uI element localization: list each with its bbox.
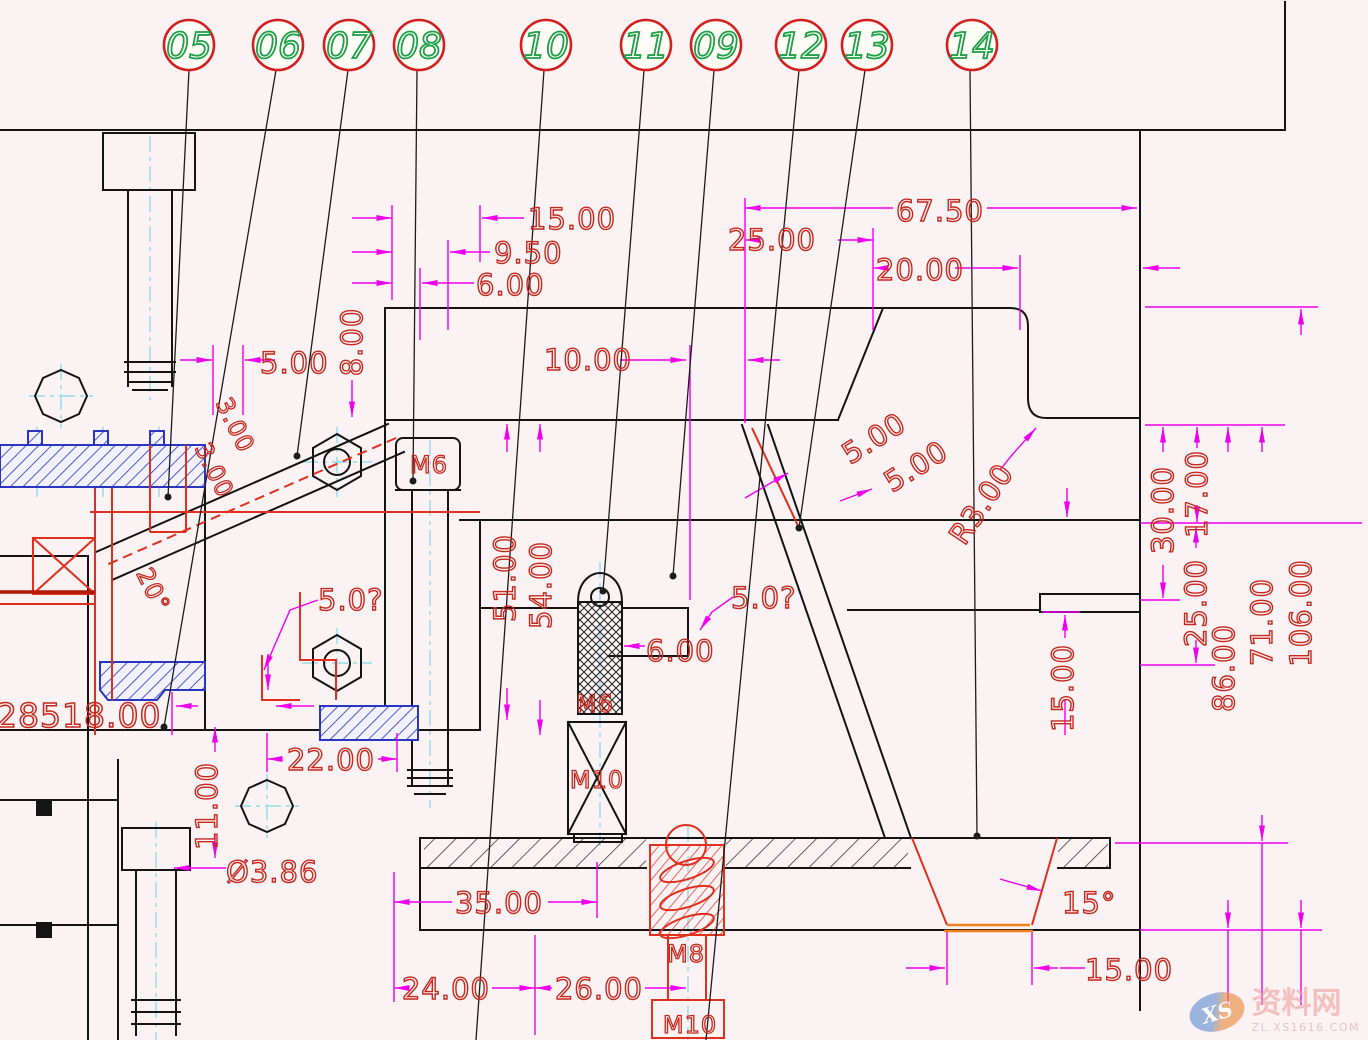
balloon-callouts: 05 06 07 08 10 11 09 12 13 14 <box>164 20 997 70</box>
balloon-08: 08 <box>394 20 444 70</box>
angled-guide-pin <box>742 425 911 838</box>
label-m6-pin: M6 <box>576 690 614 718</box>
dim-8-vertical: 8.00 <box>335 308 369 377</box>
dim-15-top: 15.00 <box>528 202 616 236</box>
dim-30-right: 30.00 <box>1146 466 1180 554</box>
dim-dia-3-86: Ø3.86 <box>226 855 318 889</box>
dim-5q-right: 5.0? <box>731 581 797 615</box>
dim-67-5: 67.50 <box>896 194 984 228</box>
balloon-14-label: 14 <box>949 26 995 67</box>
balloon-11: 11 <box>621 20 671 70</box>
dim-35: 35.00 <box>455 886 543 920</box>
dim-6-top: 6.00 <box>476 268 545 302</box>
balloon-05-label: 05 <box>166 26 212 67</box>
label-m10-screw: M10 <box>663 1011 717 1039</box>
dim-22: 22.00 <box>287 743 375 777</box>
dim-20-top: 20.00 <box>876 253 964 287</box>
dim-r3: R3.00 <box>942 457 1020 550</box>
label-m8-screw: M8 <box>667 940 705 968</box>
balloon-11-label: 11 <box>623 26 669 67</box>
watermark-xs-logo-icon: XS <box>1184 986 1248 1038</box>
watermark-logo-text: XS <box>1198 995 1235 1028</box>
balloon-08-label: 08 <box>396 26 442 67</box>
dim-17-right: 17.00 <box>1180 450 1214 538</box>
dim-11: 11.00 <box>190 762 224 850</box>
dim-6-mid: 6.00 <box>646 634 715 668</box>
bolt-head <box>103 133 195 190</box>
watermark-text-block: 资料网 ZL.XS1616.COM <box>1252 989 1361 1034</box>
watermark: XS 资料网 ZL.XS1616.COM <box>1189 989 1361 1034</box>
dim-28518: 28518.00 <box>0 696 161 735</box>
balloon-09-label: 09 <box>693 26 739 67</box>
dim-106-right: 106.00 <box>1284 559 1318 666</box>
dim-5-left: 5.00 <box>260 346 329 380</box>
dim-15-bottom: 15.00 <box>1085 953 1173 987</box>
balloon-09: 09 <box>691 20 741 70</box>
dim-15-right: 15.00 <box>1046 644 1080 732</box>
dim-10: 10.00 <box>544 343 632 377</box>
balloon-07: 07 <box>324 20 374 70</box>
balloon-06: 06 <box>253 20 303 70</box>
dim-26: 26.00 <box>555 972 643 1006</box>
ejector-screw <box>650 825 724 1038</box>
dim-20-deg: 20° <box>130 563 175 616</box>
gate-trapezoid <box>912 838 1057 931</box>
balloon-14: 14 <box>947 20 997 70</box>
balloon-13: 13 <box>842 20 892 70</box>
dim-86-right: 86.00 <box>1207 624 1241 712</box>
label-m10-block: M10 <box>570 766 624 794</box>
dim-25-top: 25.00 <box>728 223 816 257</box>
balloon-06-label: 06 <box>255 26 301 67</box>
wedge-block <box>1040 594 1140 612</box>
dim-15-deg: 15° <box>1062 886 1116 920</box>
balloon-10: 10 <box>521 20 571 70</box>
balloon-10-label: 10 <box>523 26 569 67</box>
balloon-13-label: 13 <box>844 26 890 67</box>
dim-54: 54.00 <box>524 541 558 629</box>
watermark-site-url: ZL.XS1616.COM <box>1252 1021 1361 1034</box>
watermark-site-name: 资料网 <box>1252 989 1361 1019</box>
dim-5q-left: 5.0? <box>318 583 384 617</box>
dim-51: 51.00 <box>488 534 522 622</box>
dim-9-5: 9.50 <box>494 236 563 270</box>
label-m6-head: M6 <box>410 451 448 479</box>
mold-structure <box>0 2 1285 1040</box>
balloon-12-label: 12 <box>778 26 824 67</box>
dim-71-right: 71.00 <box>1245 578 1279 666</box>
cad-mold-drawing-page: { "balloons": [ {"label":"05"},{"label":… <box>0 0 1368 1040</box>
balloon-07-label: 07 <box>326 26 372 67</box>
cad-drawing-canvas: 15.00 9.50 6.00 5.00 8.00 3.00 3.00 20° … <box>0 0 1368 1040</box>
dim-24: 24.00 <box>402 972 490 1006</box>
ejector-plate-hatch <box>424 839 1108 867</box>
balloon-05: 05 <box>164 20 214 70</box>
balloon-12: 12 <box>776 20 826 70</box>
